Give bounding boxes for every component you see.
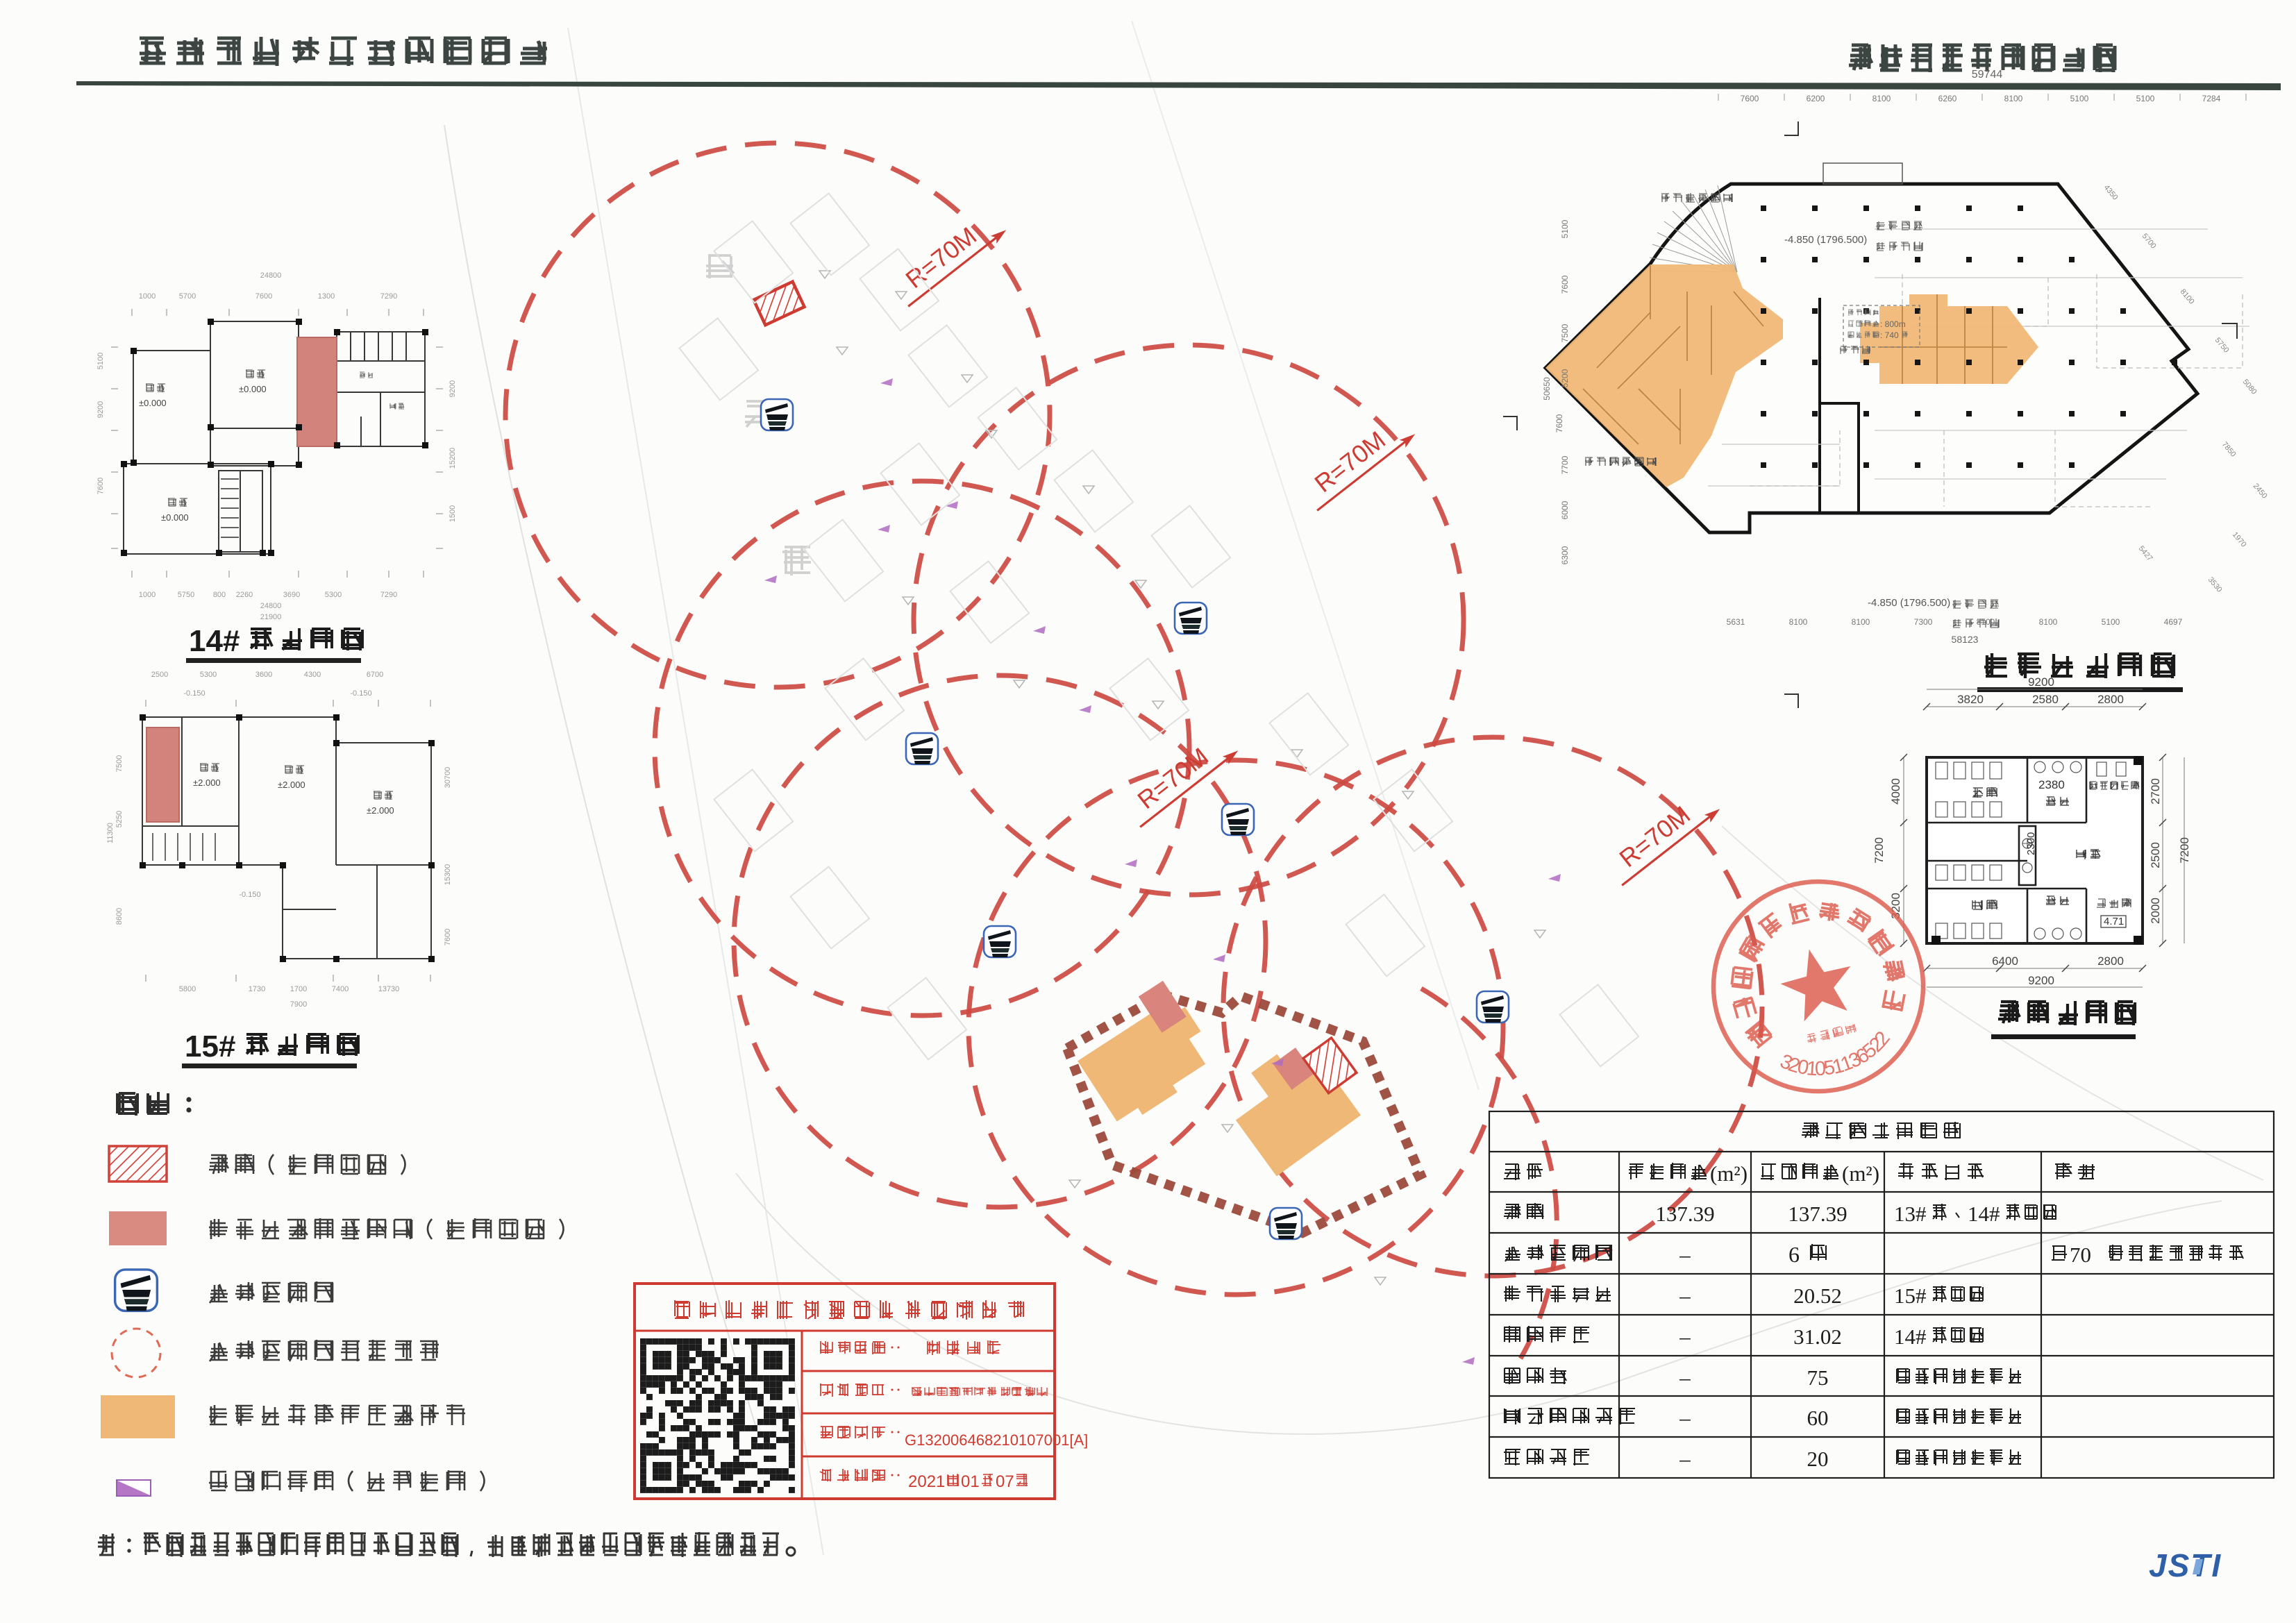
svg-text:11300: 11300 bbox=[106, 823, 115, 843]
svg-text:6200: 6200 bbox=[1807, 94, 1825, 103]
svg-text:4697: 4697 bbox=[2164, 617, 2183, 627]
svg-text:7600: 7600 bbox=[444, 929, 452, 945]
svg-text:137.39: 137.39 bbox=[1655, 1202, 1714, 1226]
svg-text:8100: 8100 bbox=[1977, 617, 1995, 627]
svg-text:7500: 7500 bbox=[1560, 323, 1570, 342]
svg-text:1300: 1300 bbox=[318, 292, 335, 301]
svg-text:8100: 8100 bbox=[1852, 617, 1870, 627]
svg-text:59744: 59744 bbox=[1972, 69, 2003, 81]
svg-text:13#: 13# bbox=[1894, 1202, 1927, 1226]
svg-text:6260: 6260 bbox=[1938, 94, 1957, 103]
svg-text:800: 800 bbox=[213, 591, 226, 599]
svg-text:137.39: 137.39 bbox=[1788, 1202, 1847, 1226]
svg-text:5100: 5100 bbox=[1560, 219, 1570, 238]
svg-text:5200: 5200 bbox=[1560, 369, 1570, 387]
svg-text:7300: 7300 bbox=[1914, 617, 1933, 627]
svg-text:7400: 7400 bbox=[332, 985, 349, 993]
svg-text:4000: 4000 bbox=[1889, 778, 1902, 805]
svg-text:58123: 58123 bbox=[1952, 634, 1979, 645]
svg-text:–: – bbox=[1679, 1325, 1691, 1349]
svg-text:70: 70 bbox=[2070, 1243, 2091, 1267]
svg-text:01: 01 bbox=[961, 1472, 980, 1491]
svg-text:24800: 24800 bbox=[260, 602, 282, 610]
svg-text:(m²): (m²) bbox=[1710, 1161, 1748, 1186]
svg-text:-4.850 (1796.500): -4.850 (1796.500) bbox=[1784, 234, 1867, 246]
svg-text:5700: 5700 bbox=[179, 292, 196, 301]
svg-text:–: – bbox=[1679, 1284, 1691, 1308]
svg-text:07: 07 bbox=[996, 1472, 1014, 1491]
svg-text:5100: 5100 bbox=[2136, 94, 2155, 103]
svg-text:1000: 1000 bbox=[139, 292, 156, 301]
svg-text:5800: 5800 bbox=[179, 985, 196, 993]
svg-text:14#: 14# bbox=[1894, 1325, 1927, 1349]
svg-text:21900: 21900 bbox=[260, 613, 282, 621]
svg-text:-0.150: -0.150 bbox=[239, 891, 260, 899]
svg-text:20.52: 20.52 bbox=[1793, 1284, 1842, 1308]
svg-text:3690: 3690 bbox=[283, 591, 300, 599]
svg-text:2260: 2260 bbox=[236, 591, 253, 599]
svg-text:7850: 7850 bbox=[2220, 440, 2238, 458]
svg-text:2300: 2300 bbox=[2025, 832, 2037, 855]
svg-text:15#: 15# bbox=[185, 1029, 235, 1063]
svg-text:15300: 15300 bbox=[444, 864, 452, 886]
svg-text:JSTI: JSTI bbox=[2149, 1547, 2222, 1583]
svg-text:1970: 1970 bbox=[2231, 530, 2248, 548]
svg-text:2580: 2580 bbox=[2032, 693, 2059, 706]
svg-text:8100: 8100 bbox=[1789, 617, 1808, 627]
svg-text:7200: 7200 bbox=[2178, 837, 2191, 864]
svg-text:2500: 2500 bbox=[2149, 842, 2162, 868]
svg-text:7500: 7500 bbox=[115, 755, 124, 772]
svg-text:–: – bbox=[1679, 1243, 1691, 1267]
svg-text:7600: 7600 bbox=[1741, 94, 1759, 103]
svg-text:5100: 5100 bbox=[97, 353, 105, 369]
svg-text:G132006468210107001[A]: G132006468210107001[A] bbox=[905, 1431, 1088, 1449]
svg-text:3820: 3820 bbox=[1957, 693, 1984, 706]
svg-text:: 800m: : 800m bbox=[1880, 319, 1906, 329]
svg-text:1000: 1000 bbox=[139, 591, 156, 599]
svg-text:9200: 9200 bbox=[97, 401, 105, 418]
svg-text:9200: 9200 bbox=[449, 380, 457, 397]
svg-text:±0.000: ±0.000 bbox=[139, 398, 167, 408]
svg-text:3530: 3530 bbox=[2206, 575, 2224, 594]
svg-text:4.71: 4.71 bbox=[2104, 916, 2124, 927]
svg-text:5631: 5631 bbox=[1727, 617, 1745, 627]
svg-text:6700: 6700 bbox=[367, 671, 383, 679]
svg-text:±2.000: ±2.000 bbox=[193, 777, 221, 788]
svg-text:4350: 4350 bbox=[2102, 183, 2120, 201]
svg-text:60: 60 bbox=[1807, 1406, 1829, 1430]
svg-text:50650: 50650 bbox=[1542, 377, 1552, 401]
svg-text:5100: 5100 bbox=[2102, 617, 2120, 627]
svg-text:7600: 7600 bbox=[1560, 275, 1570, 294]
svg-text:–: – bbox=[1679, 1447, 1691, 1471]
svg-text:5250: 5250 bbox=[115, 811, 124, 827]
svg-text:: 740: : 740 bbox=[1880, 330, 1899, 340]
svg-text:6: 6 bbox=[1788, 1242, 1800, 1267]
svg-text:2800: 2800 bbox=[2097, 955, 2124, 968]
svg-text:75: 75 bbox=[1807, 1365, 1829, 1390]
svg-text:24800: 24800 bbox=[260, 271, 282, 280]
svg-text:9200: 9200 bbox=[2028, 675, 2054, 689]
svg-text:7600: 7600 bbox=[97, 478, 105, 494]
svg-text:±0.000: ±0.000 bbox=[161, 512, 189, 523]
svg-text:31.02: 31.02 bbox=[1793, 1325, 1842, 1349]
svg-text:2800: 2800 bbox=[2097, 693, 2124, 706]
svg-text:-0.150: -0.150 bbox=[183, 689, 205, 698]
svg-text:7284: 7284 bbox=[2202, 94, 2221, 103]
svg-text:–: – bbox=[1679, 1365, 1691, 1390]
svg-text:1730: 1730 bbox=[249, 985, 265, 993]
svg-text:2021: 2021 bbox=[908, 1472, 945, 1491]
svg-text:7700: 7700 bbox=[1560, 455, 1570, 474]
svg-text:13730: 13730 bbox=[378, 985, 400, 993]
svg-text:5700: 5700 bbox=[2140, 232, 2158, 250]
svg-text:7600: 7600 bbox=[255, 292, 272, 301]
svg-text:5300: 5300 bbox=[325, 591, 342, 599]
svg-text:-0.150: -0.150 bbox=[350, 689, 371, 698]
svg-text:2450: 2450 bbox=[2252, 482, 2269, 500]
svg-text:7290: 7290 bbox=[380, 591, 397, 599]
svg-text:3600: 3600 bbox=[255, 671, 272, 679]
svg-text:5300: 5300 bbox=[200, 671, 217, 679]
svg-text:5080: 5080 bbox=[2241, 378, 2259, 396]
svg-text:8100: 8100 bbox=[2039, 617, 2058, 627]
svg-text:7600: 7600 bbox=[1555, 414, 1564, 432]
svg-text:8100: 8100 bbox=[1872, 94, 1891, 103]
svg-text:15#: 15# bbox=[1894, 1284, 1927, 1308]
svg-text:6400: 6400 bbox=[1992, 955, 2018, 968]
svg-text:5427: 5427 bbox=[2137, 544, 2154, 562]
svg-text:(m²): (m²) bbox=[1842, 1161, 1879, 1186]
svg-text:7290: 7290 bbox=[380, 292, 397, 301]
svg-text:8600: 8600 bbox=[115, 908, 124, 925]
svg-text:6000: 6000 bbox=[1560, 501, 1570, 519]
svg-text:14#: 14# bbox=[189, 624, 240, 658]
svg-text:1700: 1700 bbox=[290, 985, 307, 993]
svg-text:7200: 7200 bbox=[1872, 837, 1886, 864]
svg-text:20: 20 bbox=[1807, 1447, 1829, 1471]
svg-text:5100: 5100 bbox=[2070, 94, 2089, 103]
svg-text:±2.000: ±2.000 bbox=[367, 805, 394, 816]
svg-text:30700: 30700 bbox=[444, 767, 452, 789]
svg-text:6300: 6300 bbox=[1560, 546, 1570, 564]
svg-text:–: – bbox=[1679, 1406, 1691, 1430]
svg-text:8100: 8100 bbox=[2004, 94, 2023, 103]
svg-text:±2.000: ±2.000 bbox=[278, 780, 305, 790]
svg-text:2000: 2000 bbox=[2149, 898, 2162, 924]
svg-text:15200: 15200 bbox=[449, 448, 457, 469]
svg-text:2500: 2500 bbox=[151, 671, 168, 679]
svg-text:1500: 1500 bbox=[449, 505, 457, 522]
svg-text:-4.850 (1796.500): -4.850 (1796.500) bbox=[1868, 597, 1950, 609]
svg-text:±0.000: ±0.000 bbox=[239, 384, 267, 394]
svg-text:5750: 5750 bbox=[2213, 336, 2231, 354]
svg-text:2380: 2380 bbox=[2038, 778, 2065, 791]
svg-text:14#: 14# bbox=[1968, 1202, 2000, 1226]
svg-text:2700: 2700 bbox=[2149, 778, 2162, 805]
svg-text:4300: 4300 bbox=[304, 671, 321, 679]
svg-text:8100: 8100 bbox=[2179, 287, 2196, 305]
svg-text:5750: 5750 bbox=[178, 591, 194, 599]
svg-text:9200: 9200 bbox=[2028, 974, 2054, 987]
svg-text:7900: 7900 bbox=[290, 1000, 307, 1009]
